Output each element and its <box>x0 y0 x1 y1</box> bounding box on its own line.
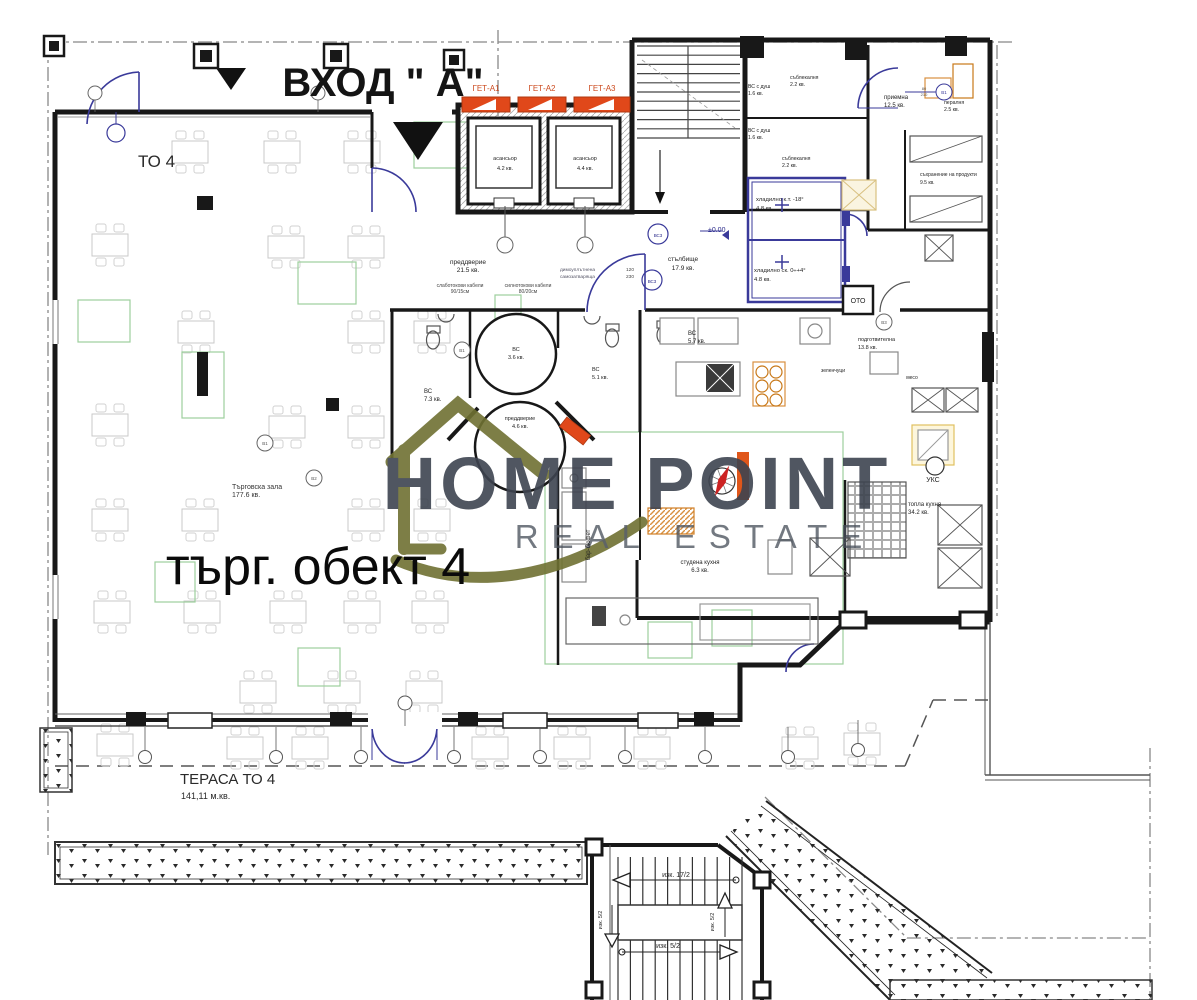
label-wc51-name: ВС <box>592 367 599 373</box>
label-dress1-name: съблекалня <box>790 75 819 81</box>
floorplan-image: HOME POINT REAL ESTATE ВХОД " А"ТО 4търг… <box>0 0 1197 1000</box>
label-tag5: В3 <box>881 320 887 325</box>
label-shower2-name: ВС с душ <box>748 128 770 134</box>
label-to4: ТО 4 <box>138 152 175 171</box>
riser-tag <box>534 751 547 764</box>
label-cold1-name: хладилно к.т. -18° <box>756 197 804 203</box>
table-icon <box>292 727 328 769</box>
label-laundry-area: 2.5 кв. <box>944 107 959 113</box>
label-wc57-name: ВС <box>688 331 697 337</box>
label-dress2-area: 2.2 кв. <box>782 163 797 169</box>
table-icon <box>92 224 128 266</box>
watermark-subtitle: REAL ESTATE <box>515 518 876 555</box>
riser-tag <box>139 751 152 764</box>
table-icon <box>348 311 384 353</box>
label-prep-name: подготвителна <box>858 337 896 343</box>
label-laundry-name: пералня <box>944 100 964 106</box>
label-vest215-name: преддверие <box>450 259 486 266</box>
label-get3: ГЕТ-А3 <box>588 84 616 93</box>
table-icon <box>240 671 276 713</box>
label-shower1-name: ВС с душ <box>748 84 770 90</box>
green-zone <box>78 300 130 342</box>
table-icon <box>184 591 220 633</box>
label-dim4b: 210 <box>921 92 928 97</box>
table-icon <box>264 131 300 173</box>
table-icon <box>344 591 380 633</box>
label-shower1-area: 1.6 кв. <box>748 91 763 97</box>
riser-tag <box>782 751 795 764</box>
entrance-arrow-left <box>216 68 246 90</box>
label-tag1: В1 <box>262 441 268 446</box>
table-icon <box>92 499 128 541</box>
table-icon <box>94 591 130 633</box>
label-smoke2: самозатваряща <box>560 275 595 280</box>
table-icon <box>472 727 508 769</box>
label-bs3b: ВС3 <box>648 279 657 284</box>
label-st3: изк. 5/2 <box>710 913 716 932</box>
label-unit: търг. обект 4 <box>166 538 470 596</box>
table-icon <box>92 404 128 446</box>
table-icon <box>348 406 384 448</box>
label-wc57-area: 5.7 кв. <box>688 339 706 345</box>
watermark-title: HOME POINT <box>383 442 892 525</box>
label-vest215-area: 21.5 кв. <box>457 267 480 274</box>
label-terrace-area: 141,11 м.кв. <box>181 791 230 801</box>
riser-tag <box>619 751 632 764</box>
label-coldk-area: 6.3 кв. <box>691 568 709 574</box>
staircase-bottom <box>586 839 770 1000</box>
label-lift1-name: асансьор <box>493 156 517 162</box>
label-prep-area: 13.8 кв. <box>858 345 878 351</box>
label-dim4a: 80 <box>922 86 927 91</box>
label-terrace-name: ТЕРАСА ТО 4 <box>180 771 275 788</box>
label-wc73-area: 7.3 кв. <box>424 397 442 403</box>
label-hot-name: топла кухня <box>908 502 941 508</box>
label-recep-area: 12.5 кв. <box>884 103 905 109</box>
table-icon <box>412 591 448 633</box>
label-d2: 230 <box>626 274 634 280</box>
label-cold2-area: 4.8 кв. <box>754 277 771 283</box>
label-st1: изк. 17/2 <box>662 872 690 879</box>
label-vest46-area: 4.6 кв. <box>512 424 529 430</box>
label-d1: 120 <box>626 267 634 273</box>
label-bar: бар-бюфет <box>586 529 592 560</box>
table-icon <box>844 723 880 765</box>
table-icon <box>344 131 380 173</box>
label-hot-area: 34.2 кв. <box>908 510 929 516</box>
label-entrance: ВХОД " А" <box>282 61 483 105</box>
label-store-area: 9.5 кв. <box>920 180 935 186</box>
riser-tag <box>448 751 461 764</box>
table-icon <box>348 499 384 541</box>
label-bs3a: ВС3 <box>654 233 663 238</box>
label-cold2-name: хладилно ск. 0÷+4° <box>754 268 806 274</box>
table-icon <box>182 499 218 541</box>
table-icon <box>172 131 208 173</box>
riser-tag <box>355 751 368 764</box>
table-icon <box>227 727 263 769</box>
label-cold1-area: 4.8 кв. <box>756 206 773 212</box>
label-level: ±0.00 <box>708 227 726 234</box>
label-wc73-name: ВС <box>424 389 433 395</box>
label-stair-area: 17.9 кв. <box>672 265 695 272</box>
label-lift2-area: 4.4 кв. <box>577 166 594 172</box>
table-icon <box>270 591 306 633</box>
label-meat: месо <box>906 375 918 381</box>
green-zone <box>298 262 356 304</box>
riser-tag <box>270 751 283 764</box>
label-stair-name: стълбище <box>668 255 699 263</box>
label-wc36-name: ВС <box>512 347 519 353</box>
label-tag3: В1 <box>459 348 465 353</box>
gate-get-a2 <box>518 97 566 112</box>
label-dress2-name: съблекалня <box>782 156 811 162</box>
label-oto: ОТО <box>851 298 866 305</box>
label-dress1-area: 2.2 кв. <box>790 82 805 88</box>
table-icon <box>269 406 305 448</box>
label-cab1b: 90/15см <box>451 289 470 295</box>
gate-get-a3 <box>574 97 630 112</box>
floorplan-svg: HOME POINT REAL ESTATE ВХОД " А"ТО 4търг… <box>0 0 1197 1000</box>
table-icon <box>324 671 360 713</box>
table-icon <box>97 724 133 766</box>
riser-tag <box>699 751 712 764</box>
table-icon <box>414 311 450 353</box>
label-cab2b: 80/20см <box>519 289 538 295</box>
green-zone <box>648 622 692 658</box>
label-hall-name: Търговска зала <box>232 484 282 491</box>
label-coldk-name: студена кухня <box>680 560 719 566</box>
label-st2: изк. 5/2 <box>656 943 680 950</box>
label-recep-name: приемна <box>884 95 909 101</box>
label-lift2-name: асансьор <box>573 156 597 162</box>
entrance-arrow-main <box>393 122 443 160</box>
label-smoke1: димоуплътнена <box>560 268 595 273</box>
green-zone <box>298 648 340 686</box>
riser-tag <box>852 744 865 757</box>
label-shower2-area: 1.6 кв. <box>748 135 763 141</box>
label-wc51-area: 5.1 кв. <box>592 375 609 381</box>
label-vest46-name: преддверие <box>505 416 536 422</box>
table-icon <box>634 727 670 769</box>
label-tag4: В1 <box>941 90 947 95</box>
staircase-top <box>637 46 740 204</box>
elevator-core <box>458 105 632 253</box>
label-hall-area: 177.6 кв. <box>232 492 260 499</box>
label-get2: ГЕТ-А2 <box>528 84 556 93</box>
label-get1: ГЕТ-А1 <box>472 84 500 93</box>
label-st4: изк. 5/2 <box>598 911 604 930</box>
table-icon <box>178 311 214 353</box>
table-icon <box>554 727 590 769</box>
elevator-gates <box>462 97 630 112</box>
label-lift1-area: 4.2 кв. <box>497 166 514 172</box>
label-wc36-area: 3.6 кв. <box>508 355 525 361</box>
label-store-name: съхранение на продукти <box>920 172 977 178</box>
label-uks: УКС <box>926 477 940 484</box>
label-veg: зеленчуци <box>821 368 845 374</box>
terrace-risers <box>139 696 865 764</box>
label-tag2: В2 <box>311 476 317 481</box>
